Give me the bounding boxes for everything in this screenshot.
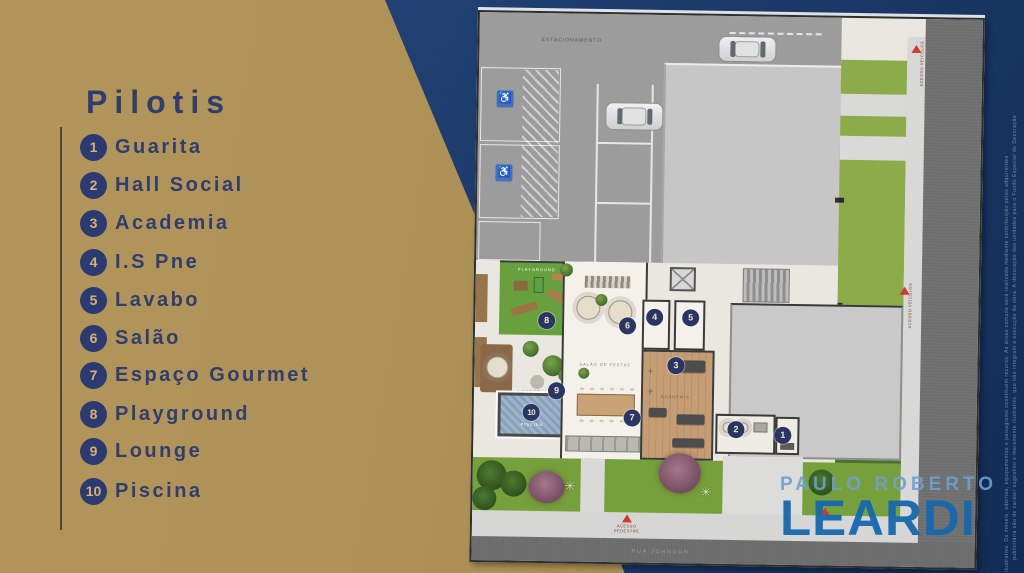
legend-number-badge: 2: [80, 172, 107, 199]
academia-label: ACADEMIA: [661, 394, 690, 399]
legend-item-label: Guarita: [115, 136, 203, 159]
legend-item-label: Piscina: [115, 480, 203, 503]
fence-post: [835, 198, 844, 203]
rug: [585, 276, 631, 289]
guard-desk: [780, 443, 794, 450]
legend-number-badge: 7: [80, 362, 107, 389]
building-footprint: [661, 63, 841, 273]
pedestrian-access-label: ACESSO PEDESTRE: [614, 524, 640, 534]
logo-line-leardi: LEARDI: [780, 496, 1024, 541]
legend-item-lavabo: 5 Lavabo: [80, 287, 200, 314]
hatched-area: [521, 70, 559, 218]
legend-item-is-pne: 4 I.S Pne: [80, 249, 199, 276]
legend-item-label: Lavabo: [115, 289, 200, 312]
legend-item-label: I.S Pne: [115, 251, 199, 274]
wheelchair-icon: ♿: [495, 164, 512, 181]
legend-item-playground: 8 Playground: [80, 401, 250, 428]
driveway-band: [840, 94, 906, 117]
palm-icon: ✳: [564, 479, 575, 492]
disclaimer-text-inner: ilustrativa. Os móveis, adornos, equipam…: [1004, 24, 1010, 572]
car-top-view: [718, 36, 776, 63]
kitchen-counter: [565, 435, 645, 452]
dumbbell-icon: +: [647, 386, 659, 398]
garden-walkway: [580, 459, 605, 514]
hall-table: [753, 422, 767, 432]
flyer-canvas: Pilotis 1 Guarita 2 Hall Social 3 Academ…: [0, 0, 1024, 573]
pool-label: PISCINA: [520, 422, 543, 427]
legend-item-hall-social: 2 Hall Social: [80, 172, 244, 199]
salao-room: SALÃO DE FESTAS: [560, 261, 648, 459]
hall-social-room: [715, 414, 776, 455]
legend-item-label: Salão: [115, 327, 181, 350]
vehicle-access-label: ACESSO VEÍCULOS: [920, 41, 926, 87]
play-equipment: [534, 277, 544, 293]
stairs: [742, 268, 790, 303]
play-equipment: [511, 301, 538, 316]
access-triangle-icon: [622, 514, 632, 522]
wheelchair-icon: ♿: [496, 90, 513, 107]
legend-item-espaco-gourmet: 7 Espaço Gourmet: [80, 362, 310, 389]
legend-number-badge: 8: [80, 401, 107, 428]
legend-number-badge: 3: [80, 210, 107, 237]
legend-item-label: Lounge: [115, 440, 202, 463]
legend-item-academia: 3 Academia: [80, 210, 230, 237]
legend-item-lounge: 9 Lounge: [80, 438, 202, 465]
dumbbell-icon: +: [647, 366, 659, 378]
legend-number-badge: 1: [80, 134, 107, 161]
parking-label: ESTACIONAMENTO: [541, 37, 602, 44]
legend-title: Pilotis: [86, 84, 231, 121]
tree: [578, 368, 589, 379]
gym-equipment: [672, 438, 704, 448]
parking-stall: [478, 221, 541, 261]
leardi-logo: PAULO ROBERTO LEARDI: [780, 474, 1024, 541]
legend-item-label: Hall Social: [115, 174, 244, 197]
gym-equipment: [649, 408, 667, 417]
legend-number-badge: 5: [80, 287, 107, 314]
legend-item-label: Academia: [115, 212, 230, 235]
gym-equipment: [677, 414, 705, 424]
playground-label: PLAYGROUND: [518, 267, 556, 273]
plan-badge-espaco-gourmet: 7: [623, 409, 640, 426]
street-name-label: RUA JOHNSON: [631, 548, 689, 555]
vehicle-access-label: ACESSO VEÍCULOS: [908, 283, 914, 329]
driveway-band: [840, 136, 906, 161]
legend-number-badge: 6: [80, 325, 107, 352]
legend-number-badge: 9: [80, 438, 107, 465]
play-equipment: [514, 281, 528, 291]
legend-item-guarita: 1 Guarita: [80, 134, 203, 161]
legend-number-badge: 10: [80, 478, 107, 505]
palm-icon: ✳: [700, 486, 711, 499]
chairs-row: [577, 386, 635, 393]
legend-rule: [60, 127, 62, 530]
legend-number-badge: 4: [80, 249, 107, 276]
car-top-view: [605, 102, 663, 131]
disclaimer-text-outer: publicitária são de caráter sugestivo e …: [1012, 12, 1018, 560]
legend-item-salao: 6 Salão: [80, 325, 181, 352]
elevator: [670, 267, 696, 291]
legend-item-piscina: 10 Piscina: [80, 478, 203, 505]
legend-item-label: Playground: [115, 403, 250, 426]
plan-badge-lavabo: 5: [682, 309, 699, 326]
wood-deck: [475, 274, 488, 322]
legend-item-label: Espaço Gourmet: [115, 364, 310, 387]
salao-label: SALÃO DE FESTAS: [579, 362, 630, 368]
